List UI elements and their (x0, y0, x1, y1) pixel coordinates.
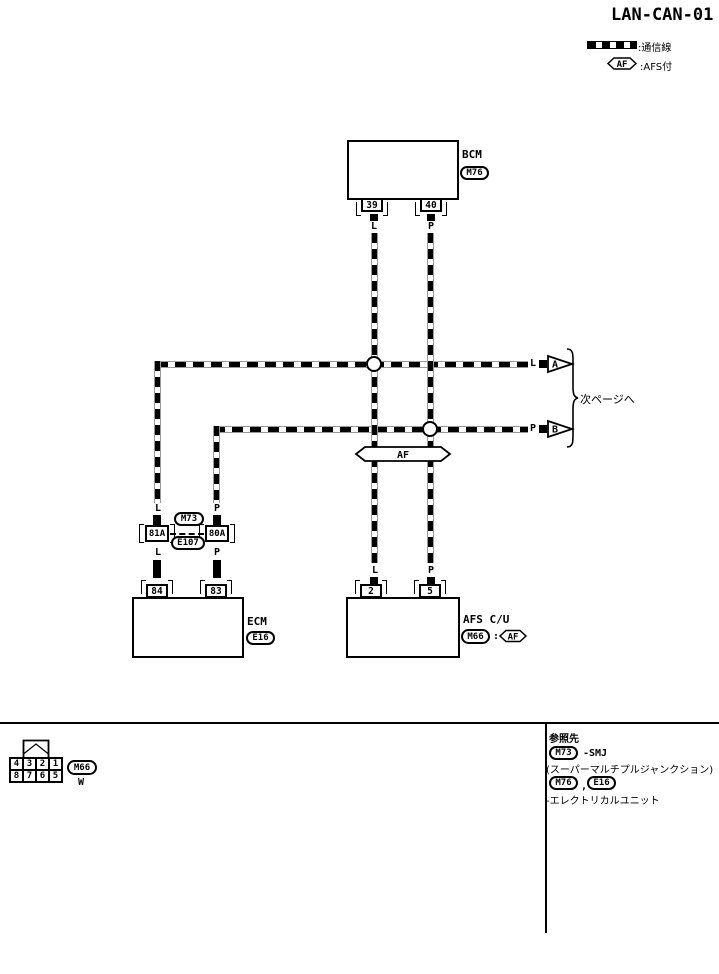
pin-number: 40 (420, 198, 442, 212)
can-l-junction-dot (422, 421, 438, 437)
arrow-a-wire-label: L (529, 358, 537, 369)
terminal-bracket-right (441, 580, 446, 594)
pinout-connector-badge: M66 (67, 760, 97, 775)
ecm-pin-84-terminal: 84 (142, 580, 172, 598)
can-h-bus-wire (157, 361, 528, 368)
ref-unit-description: -エレクトリカルユニット (546, 792, 660, 807)
smj-connector-e107-badge: E107 (171, 536, 205, 550)
afs-cu-name: AFS C/U (463, 613, 509, 626)
pin-cell: 4 (10, 758, 23, 770)
footer-divider-line (0, 722, 719, 724)
terminal-number: 80A (205, 525, 229, 542)
pin-cell: 2 (36, 758, 49, 770)
pin-cell: 3 (23, 758, 36, 770)
connector-pinout-grid: 4 3 2 1 8 7 6 5 (9, 757, 63, 783)
bcm-connector-badge: M76 (460, 166, 489, 180)
pin-number: 83 (205, 584, 227, 598)
pin-cell: 7 (23, 770, 36, 782)
afs-pin-2-terminal: 2 (356, 580, 386, 598)
smj-terminal-81a: 81A (139, 524, 175, 543)
ecm-box (132, 597, 244, 658)
afs-af-tag: AF (508, 633, 519, 643)
terminal-number: 81A (145, 525, 169, 542)
ecm-name: ECM (247, 615, 267, 628)
arrow-a-letter: A (552, 360, 558, 371)
ref-m73-badge: M73 (549, 746, 578, 760)
bcm-box (347, 140, 459, 200)
smj-lower-wire-label-l: L (154, 547, 162, 558)
afs-wire-label-l: L (371, 565, 379, 576)
af-hexagon-icon: AF (607, 57, 637, 70)
terminal-bracket-right (168, 580, 173, 594)
af-option-hexagon: AF (355, 446, 451, 462)
pin-cell: 5 (49, 770, 62, 782)
pin-cell: 1 (49, 758, 62, 770)
ecm-connector-badge: E16 (246, 631, 275, 645)
afs-connector-badge: M66 (461, 629, 490, 644)
smj-wire-label-l: L (154, 503, 162, 514)
connector-bracket-left (139, 524, 144, 543)
terminal-bracket-right (383, 202, 388, 216)
smj-connector-m73-badge: M73 (174, 512, 204, 526)
wire-stub (539, 360, 547, 368)
wire-stub (213, 560, 221, 578)
ecm-pin-83-terminal: 83 (201, 580, 231, 598)
can-h-wire-vertical (371, 233, 378, 563)
connector-color-code: W (78, 777, 84, 788)
smj-wire-label-p: P (213, 503, 221, 514)
next-page-label: 次ページへ (580, 391, 635, 407)
terminal-bracket-right (227, 580, 232, 594)
pin-number: 5 (419, 584, 441, 598)
footer-vertical-divider (545, 724, 547, 933)
pin-cell: 8 (10, 770, 23, 782)
can-l-wire-vertical (427, 233, 434, 563)
afs-cu-box (346, 597, 460, 658)
bcm-pin-40-terminal: 40 (416, 198, 446, 216)
ref-smj-label: -SMJ (583, 748, 607, 759)
connector-keying-tab-icon (22, 739, 50, 757)
afs-wire-label-p: P (427, 565, 435, 576)
comm-line-legend-label: :通信線 (638, 39, 671, 54)
bcm-pin-39-terminal: 39 (357, 198, 387, 216)
can-h-branch-wire (154, 361, 161, 503)
reference-heading: 参照先 (549, 730, 579, 745)
pin-number: 84 (146, 584, 168, 598)
afs-legend-label: :AFS付 (640, 58, 672, 73)
arrow-b-wire-label: P (529, 423, 537, 434)
ref-smj-description: (スーパーマルチプルジャンクション) (546, 761, 713, 776)
ref-m76-badge: M76 (549, 776, 578, 790)
ref-e16-badge: E16 (587, 776, 616, 790)
afs-pin-5-terminal: 5 (415, 580, 445, 598)
bcm-name: BCM (462, 148, 482, 161)
wire-color-label-p: P (427, 221, 435, 232)
pin-number: 39 (361, 198, 383, 212)
wire-stub (539, 425, 547, 433)
smj-lower-wire-label-p: P (213, 547, 221, 558)
page-title: LAN-CAN-01 (611, 5, 713, 25)
af-legend-tag: AF (617, 60, 628, 70)
wire-color-label-l: L (370, 221, 378, 232)
pin-cell: 6 (36, 770, 49, 782)
connector-bracket-right (230, 524, 235, 543)
comm-line-legend-swatch (587, 41, 637, 49)
af-option-tag: AF (397, 450, 409, 461)
terminal-bracket-right (382, 580, 387, 594)
terminal-bracket-right (442, 202, 447, 216)
can-l-branch-wire (213, 426, 220, 503)
arrow-b-letter: B (552, 425, 558, 436)
wiring-diagram-page: LAN-CAN-01 :通信線 AF :AFS付 BCM M76 CAN-H C… (0, 0, 719, 974)
wire-stub (153, 560, 161, 578)
afs-af-hexagon-icon: AF (499, 629, 527, 643)
can-h-junction-dot (366, 356, 382, 372)
pin-number: 2 (360, 584, 382, 598)
brace-icon (565, 347, 579, 449)
